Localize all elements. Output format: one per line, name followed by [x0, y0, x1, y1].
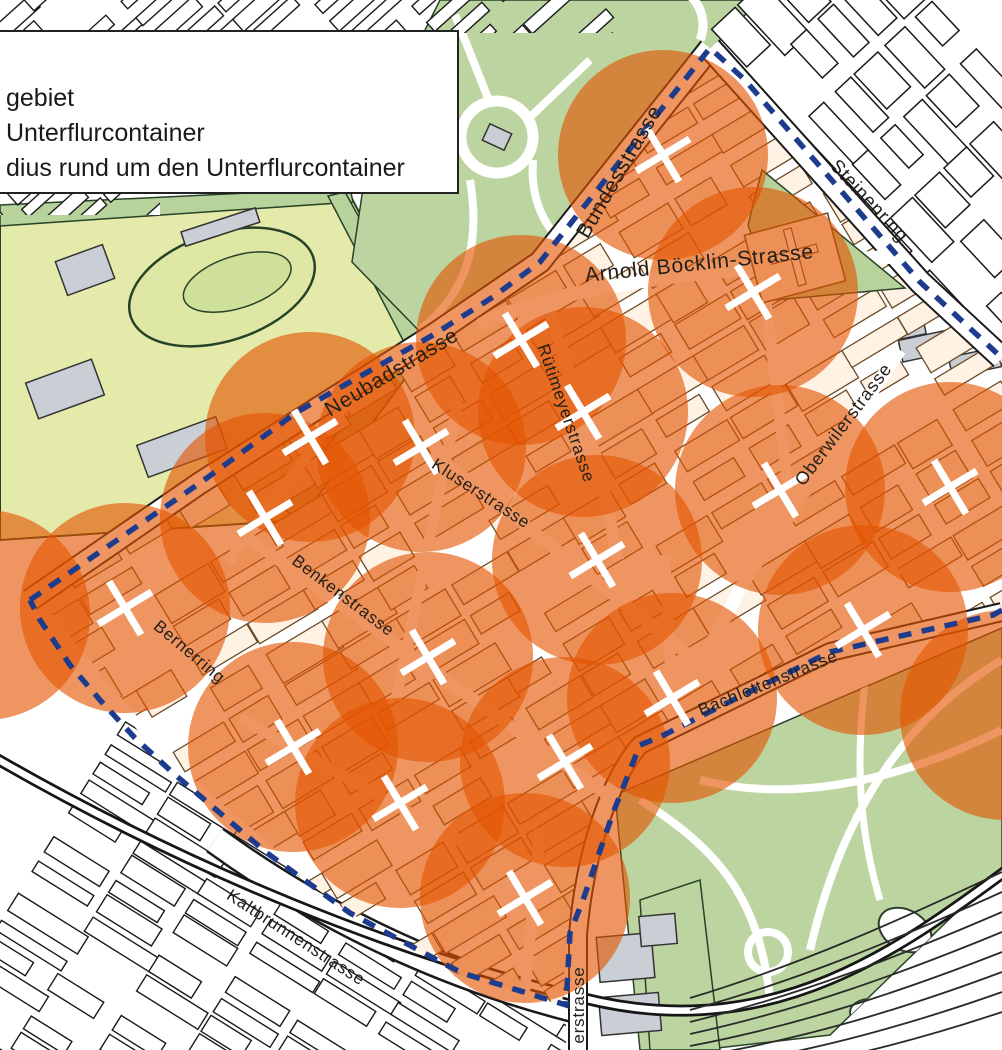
legend-entry-pilot-area: gebiet [6, 84, 74, 112]
map-stage: BundesstrasseArnold Böcklin-StrasseStein… [0, 0, 1002, 1050]
legend: gebiet Unterflurcontainer dius rund um d… [0, 31, 458, 193]
legend-entry-container: Unterflurcontainer [6, 119, 205, 147]
legend-entry-radius: dius rund um den Unterflurcontainer [6, 154, 405, 182]
city-map: BundesstrasseArnold Böcklin-StrasseStein… [0, 0, 1002, 1050]
street-label-erstrasse: erstrasse [569, 966, 588, 1043]
